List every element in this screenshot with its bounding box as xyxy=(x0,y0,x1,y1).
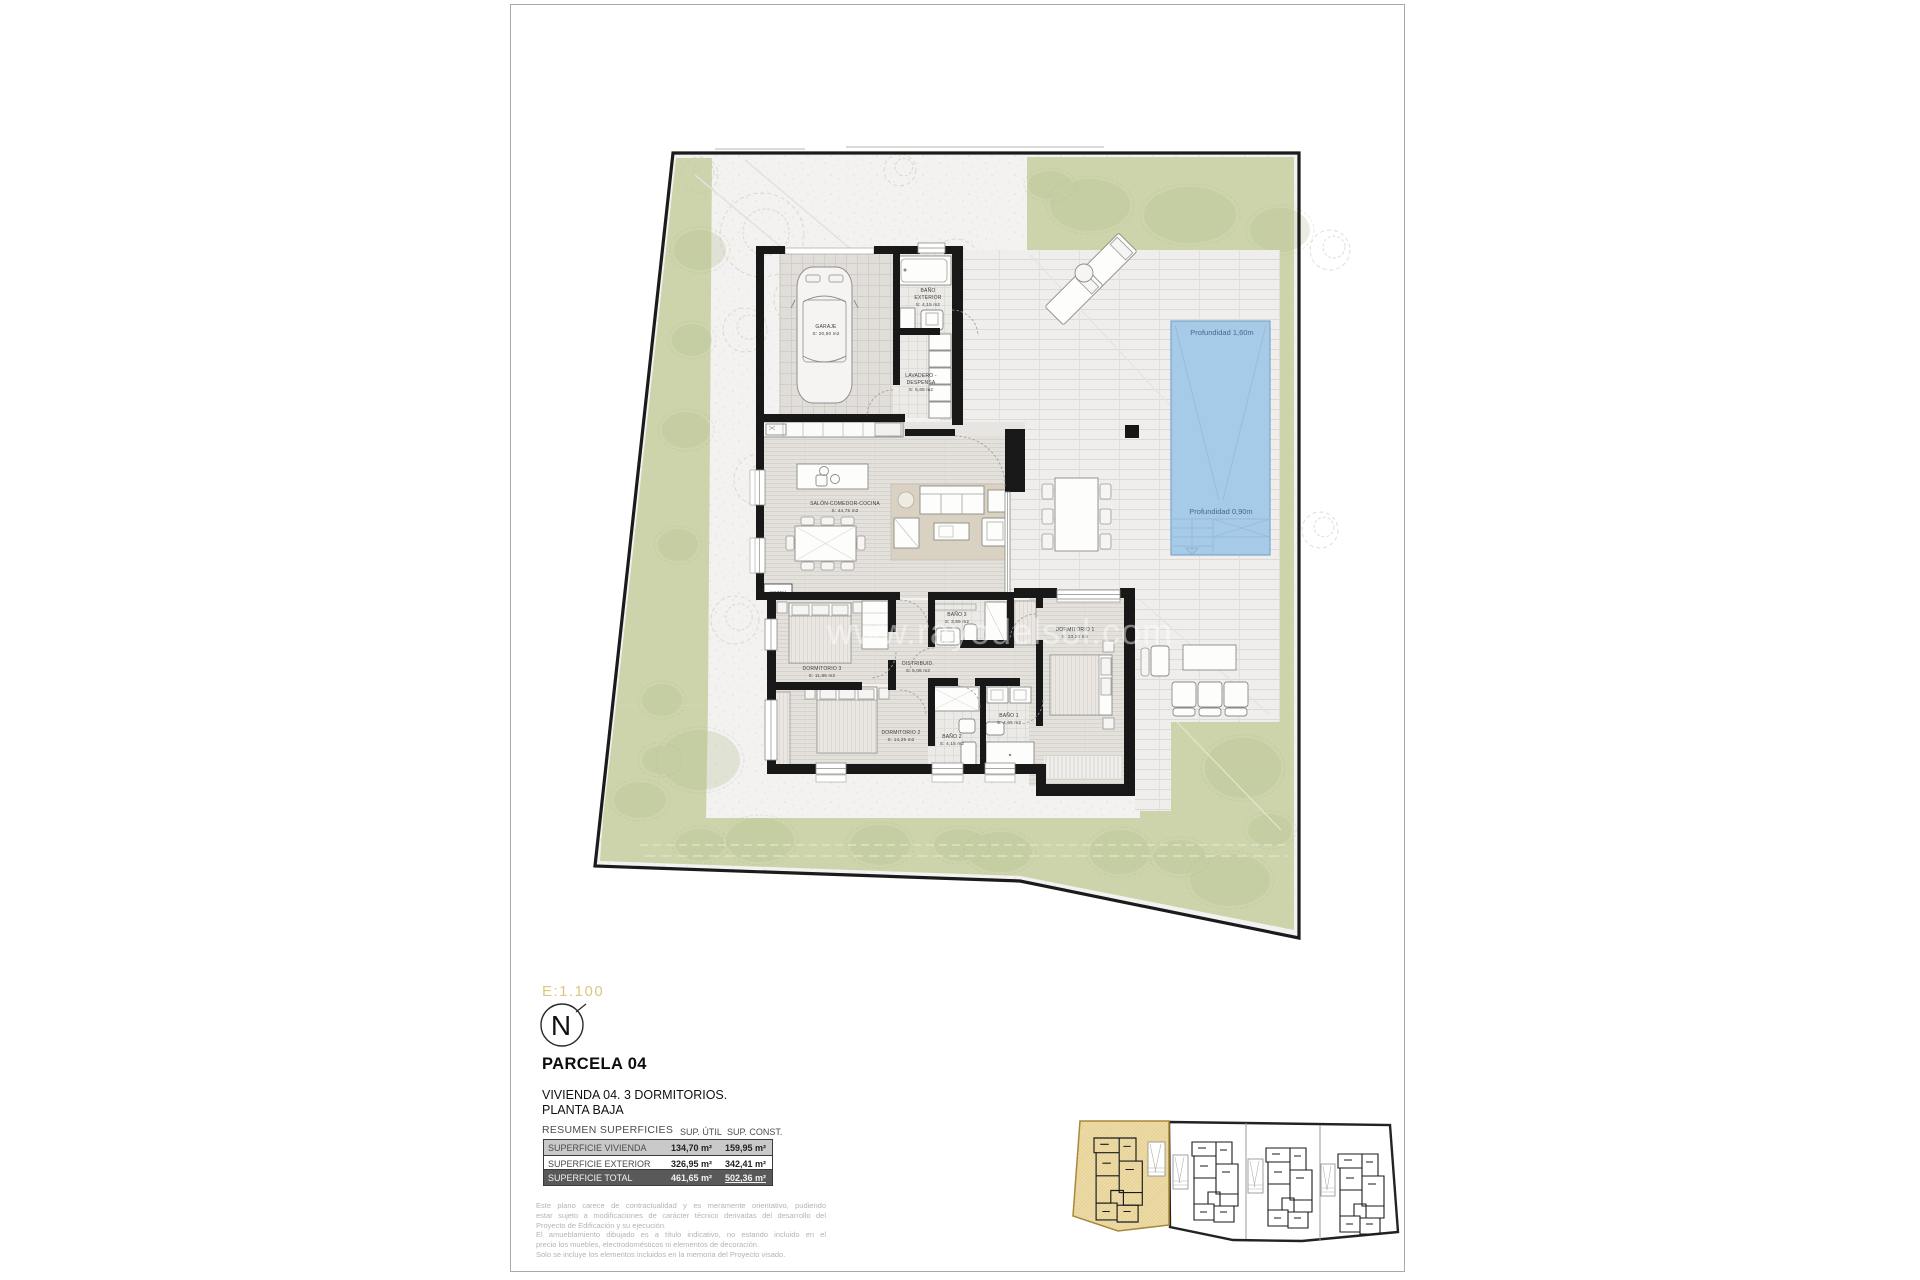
svg-text:S: 11,85 m2: S: 11,85 m2 xyxy=(809,673,836,678)
svg-text:BAÑO 1: BAÑO 1 xyxy=(999,712,1019,719)
svg-text:N: N xyxy=(551,1010,571,1041)
svg-text:S: 5,65 m2: S: 5,65 m2 xyxy=(909,387,933,392)
svg-text:Profundidad 1,60m: Profundidad 1,60m xyxy=(1190,328,1253,337)
svg-text:S: 44,75 m2: S: 44,75 m2 xyxy=(832,508,859,513)
svg-text:EXTERIOR: EXTERIOR xyxy=(914,295,941,301)
svg-text:DISTRIBUID.: DISTRIBUID. xyxy=(902,661,934,667)
svg-text:SALÓN-COMEDOR-COCINA: SALÓN-COMEDOR-COCINA xyxy=(810,500,880,507)
svg-text:S: 5,06 m2: S: 5,06 m2 xyxy=(906,668,930,673)
svg-text:DORMITORIO 3: DORMITORIO 3 xyxy=(803,666,842,672)
svg-text:DORMITORIO 2: DORMITORIO 2 xyxy=(882,730,921,736)
svg-text:LAVADERO -: LAVADERO - xyxy=(905,373,937,379)
svg-text:GARAJE: GARAJE xyxy=(815,324,837,330)
svg-text:S: 20,50 m2: S: 20,50 m2 xyxy=(813,331,840,336)
svg-text:S: 4,15 m2: S: 4,15 m2 xyxy=(916,302,940,307)
svg-text:DESPENSA: DESPENSA xyxy=(907,380,936,386)
svg-text:S: 14,25 m2: S: 14,25 m2 xyxy=(888,737,915,742)
svg-text:S: 4,15 m2: S: 4,15 m2 xyxy=(940,741,964,746)
svg-text:Profundidad 0,90m: Profundidad 0,90m xyxy=(1189,507,1252,516)
svg-text:www.rayodelsol.com: www.rayodelsol.com xyxy=(826,611,1173,652)
svg-text:BAÑO 2: BAÑO 2 xyxy=(942,733,962,740)
svg-text:BAÑO: BAÑO xyxy=(921,287,936,294)
svg-text:S: 4,65 m2: S: 4,65 m2 xyxy=(997,720,1021,725)
